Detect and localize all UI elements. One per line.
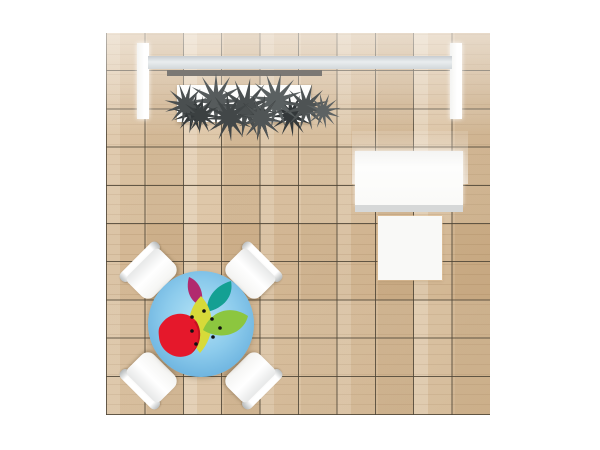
wood-tile-floor — [106, 33, 490, 415]
plant-foliage — [141, 71, 351, 141]
foliage-cluster — [160, 71, 346, 141]
round-table — [148, 271, 254, 377]
reception-counter-edge — [355, 205, 463, 212]
booth-render — [0, 0, 600, 450]
fruit-leaves-logo — [148, 271, 254, 377]
square-table — [378, 216, 442, 280]
teal-leaf — [207, 281, 232, 312]
backwall-header-beam — [148, 56, 452, 69]
backwall-right-panel — [450, 43, 462, 119]
reception-counter — [355, 151, 463, 205]
